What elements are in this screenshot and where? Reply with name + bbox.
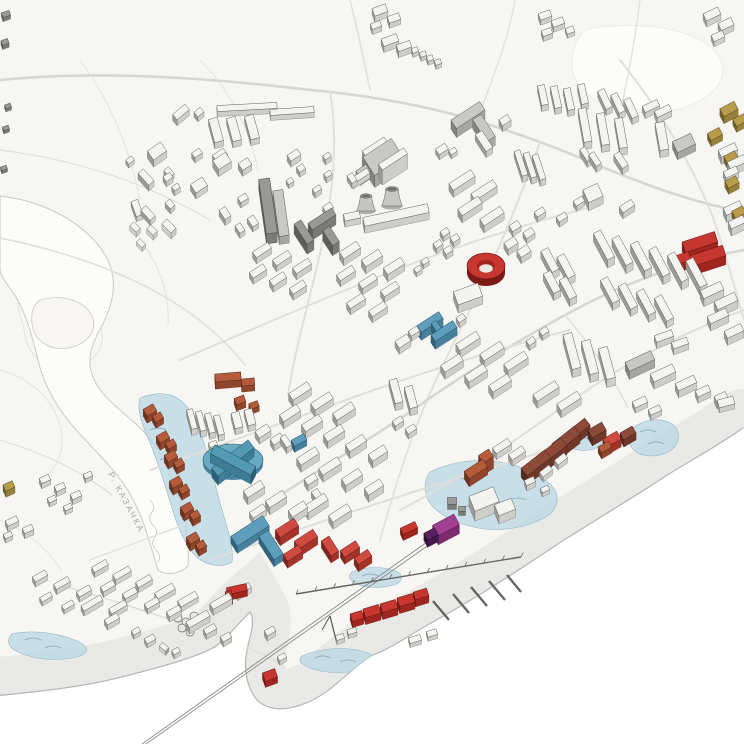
circus-courtyard [479,264,493,272]
building-wall [459,512,466,516]
city-map-canvas: Р. КАЗАЧКА [0,0,744,744]
storage-tank [178,624,186,632]
building-roof [241,378,255,386]
building-roof [448,498,457,505]
axonometric-city-map: Р. КАЗАЧКА [0,0,744,744]
building-wall [266,233,277,245]
building-roof [459,507,466,512]
circus-building [467,253,505,286]
tower-mouth [362,195,370,198]
tower-mouth [388,187,397,190]
building-wall [448,505,457,510]
